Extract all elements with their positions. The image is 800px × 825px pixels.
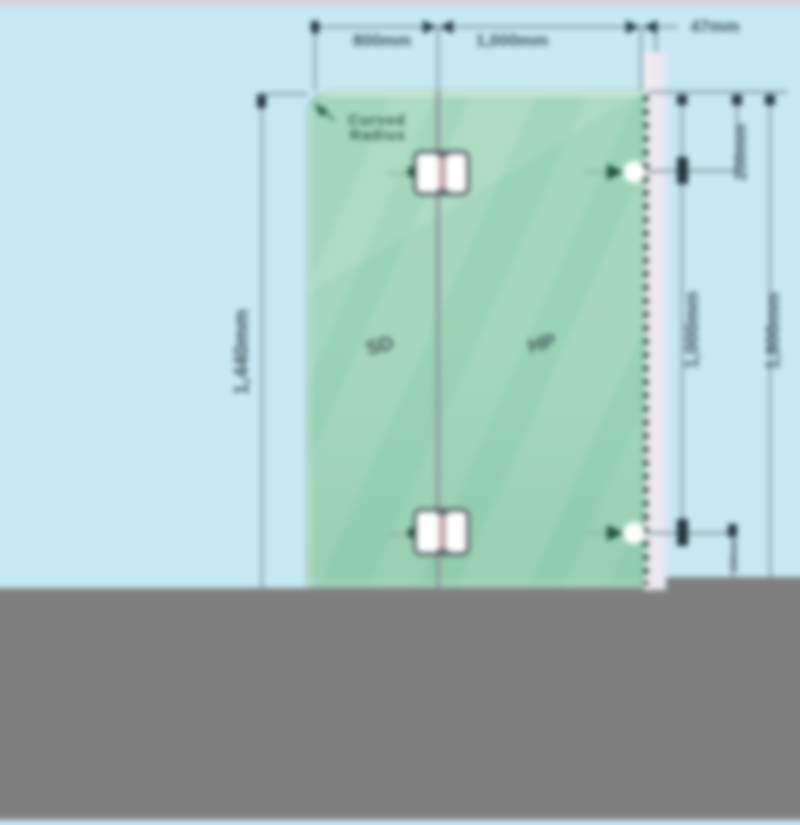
svg-text:1,000mm: 1,000mm — [682, 291, 702, 368]
svg-text:Radius: Radius — [350, 127, 406, 144]
svg-text:47mm: 47mm — [690, 17, 739, 36]
svg-text:1,000mm: 1,000mm — [476, 31, 549, 50]
svg-text:1,800mm: 1,800mm — [763, 292, 783, 369]
svg-text:1,440mm: 1,440mm — [231, 309, 253, 395]
svg-text:200mm: 200mm — [732, 124, 750, 181]
svg-text:800mm: 800mm — [353, 31, 412, 50]
svg-text:150mm: 150mm — [729, 540, 740, 573]
